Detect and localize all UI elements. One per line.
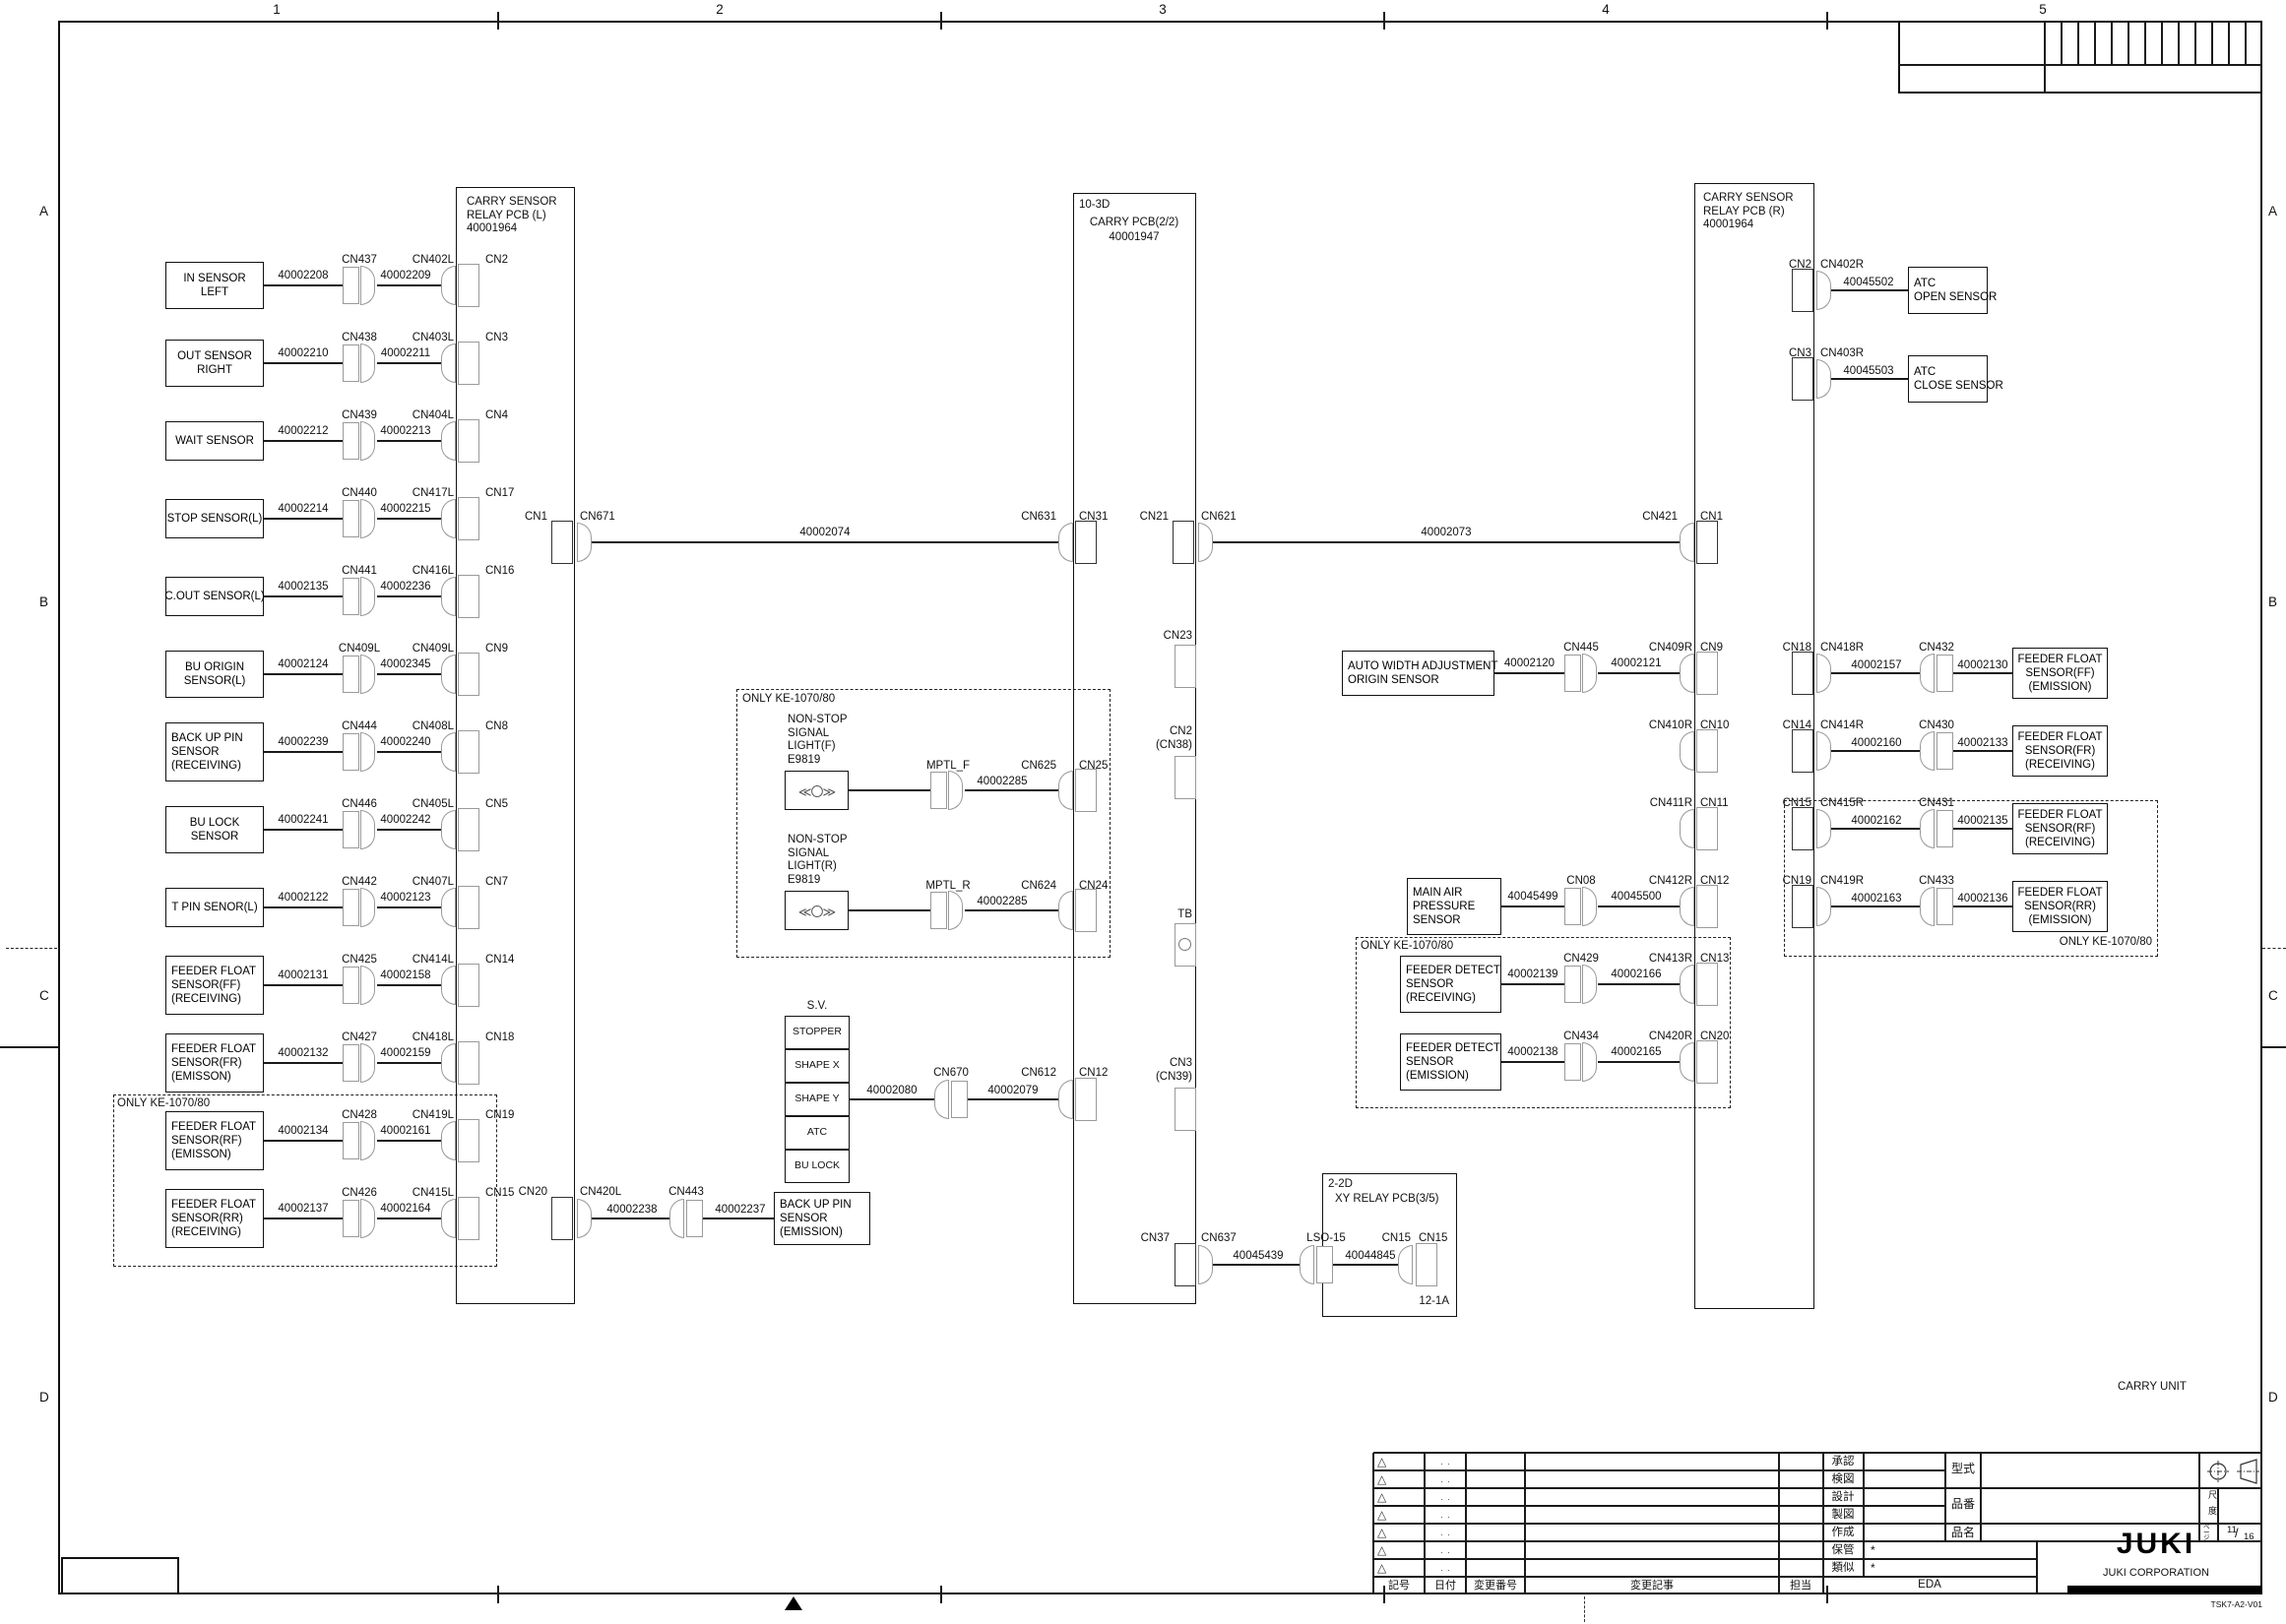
line [1945, 1523, 2262, 1525]
xy-pcb-title: XY RELAY PCB(3/5) [1335, 1193, 1438, 1207]
pcb-connector-stub [1175, 756, 1196, 799]
approval-label: 製図 [1832, 1509, 1855, 1523]
grid-row-label: C [2268, 988, 2278, 1004]
wire-part-number: 40002208 [278, 270, 328, 283]
sv-title: S.V. [807, 1000, 828, 1014]
pcb-connector-label: CN3 (CN39) [1156, 1057, 1192, 1084]
wire-part-number: 40002120 [1504, 657, 1555, 671]
only-ke-label: ONLY KE-1070/80 [1361, 940, 1453, 954]
cable-connector-body [343, 422, 359, 460]
cable-connector [1680, 809, 1694, 848]
wire-part-number: 40002237 [715, 1204, 765, 1218]
line [264, 284, 343, 286]
zone-divider [2262, 948, 2286, 949]
sv-item: BU LOCK [794, 1159, 840, 1171]
cable-connector [1058, 891, 1073, 930]
connector-label: CN402L [413, 254, 454, 268]
only-ke-box-right [1784, 800, 2158, 957]
fold-mark-line [1584, 1596, 1585, 1622]
xy-pcb-zone-tag: 2-2D [1328, 1178, 1353, 1192]
storage-label: 保管 [1832, 1544, 1855, 1558]
line [785, 1149, 850, 1151]
line [0, 1046, 58, 1049]
grid-row-label: D [2268, 1390, 2278, 1405]
line [377, 984, 441, 986]
connector-label: CN416L [413, 565, 454, 579]
connector-label: CN412R [1649, 875, 1692, 889]
pcb-connector-label: CN7 [485, 876, 508, 890]
cable-connector-body [930, 772, 947, 809]
sensor-box-left: BACK UP PIN SENSOR (RECEIVING) [165, 722, 264, 781]
line [377, 362, 441, 364]
sensor-box-left: FEEDER FLOAT SENSOR(FF) (RECEIVING) [165, 956, 264, 1015]
line [1373, 1523, 1823, 1524]
sensor-box-atc: ATC CLOSE SENSOR [1908, 355, 1988, 403]
line [2211, 21, 2212, 65]
pcb-connector-stub [458, 342, 479, 385]
connector-label: CN409R [1649, 642, 1692, 656]
cable-connector [1920, 731, 1935, 771]
line [1383, 12, 1385, 30]
connector-label: LSO-15 [1306, 1232, 1346, 1246]
cable-connector-body [343, 656, 359, 693]
sv-item: SHAPE X [794, 1059, 840, 1071]
wire-part-number: 40045502 [1843, 277, 1893, 290]
line [849, 789, 930, 791]
drawing-code: TSK7-A2-V01 [2211, 1599, 2262, 1609]
line [1823, 1523, 1945, 1524]
pcb-connector-stub [458, 808, 479, 851]
connector-label: CN443 [668, 1186, 704, 1200]
connector-label: CN439 [342, 409, 377, 423]
line [377, 440, 441, 442]
similar-value: * [1871, 1561, 1875, 1575]
connector-label: CN404L [413, 409, 454, 423]
line [2198, 1453, 2200, 1541]
line [1823, 1558, 2037, 1559]
revision-strip [1898, 21, 2262, 94]
connector-label: CN417L [413, 487, 454, 501]
revision-dots: . . [1441, 1475, 1450, 1484]
line [1945, 1487, 2262, 1489]
terminal-circle [1178, 938, 1191, 951]
wire-part-number: 40045439 [1233, 1250, 1283, 1264]
approval-label: 承認 [1832, 1456, 1855, 1469]
line [2194, 21, 2195, 65]
cable-connector-body [343, 811, 359, 848]
connector-label: CN637 [1201, 1232, 1237, 1246]
pcb-connector-label: CN31 [1079, 511, 1108, 525]
line [2161, 21, 2162, 65]
pcb-connector-label: CN5 [485, 798, 508, 812]
pcb-connector-label: CN16 [485, 565, 514, 579]
pcb-connector-label: CN9 [1700, 642, 1723, 656]
pcb-connector-stub [1696, 807, 1718, 850]
sensor-box-left: WAIT SENSOR [165, 421, 264, 461]
brand-subtitle: JUKI CORPORATION [2103, 1567, 2209, 1580]
connector-label: CN624 [1021, 880, 1056, 894]
line [785, 1115, 850, 1117]
line [2262, 1046, 2286, 1049]
line [264, 829, 343, 831]
part-name-label: 品名 [1951, 1526, 1975, 1539]
grid-row-label: D [39, 1390, 49, 1405]
pcb-connector-stub [458, 730, 479, 774]
wire-part-number: 40002124 [278, 658, 328, 672]
connector-label: CN446 [342, 798, 377, 812]
connector-label: CN411R [1650, 797, 1692, 811]
wire-part-number: 40002239 [278, 736, 328, 750]
pcb-connector-label: CN17 [485, 487, 514, 501]
sensor-box-left: IN SENSOR LEFT [165, 262, 264, 309]
cable-connector-body [343, 889, 359, 926]
relay-pcb-left-title: CARRY SENSOR RELAY PCB (L) 40001964 [467, 196, 557, 236]
sensor-box-left: FEEDER FLOAT SENSOR(FR) (EMISSON) [165, 1033, 264, 1093]
line [377, 751, 441, 753]
line [1373, 1540, 1823, 1541]
sensor-box-right: FEEDER FLOAT SENSOR(FR) (RECEIVING) [2012, 725, 2108, 777]
page-total: 16 [2244, 1531, 2254, 1542]
revision-triangle: △ [1377, 1526, 1386, 1539]
cable-connector-body [1564, 655, 1581, 692]
line [703, 1218, 774, 1219]
sv-item: STOPPER [793, 1026, 842, 1037]
wire-part-number: 40002345 [380, 658, 430, 672]
cable-connector [934, 1080, 949, 1119]
revision-dots: . . [1441, 1458, 1450, 1467]
cable-connector [1058, 523, 1073, 562]
wire-part-number: 40002135 [278, 581, 328, 594]
line [2144, 21, 2145, 65]
line [264, 595, 343, 597]
pcb-connector-label: CN24 [1079, 880, 1108, 894]
wire-part-number: 40002074 [799, 527, 850, 540]
cable-connector-body [343, 967, 359, 1004]
sensor-box-atc: ATC OPEN SENSOR [1908, 267, 1988, 314]
cable-connector [441, 888, 456, 927]
xy-pcb-zone-tag: 12-1A [1419, 1295, 1449, 1309]
pcb-connector-stub [458, 1041, 479, 1085]
connector-label: CN402R [1820, 259, 1864, 273]
pcb-connector-stub [1696, 729, 1718, 773]
cable-connector [1680, 887, 1694, 926]
cable-connector-body [343, 578, 359, 615]
revision-dots: . . [1441, 1493, 1450, 1502]
line [592, 1218, 669, 1219]
connector-label: CN414L [413, 954, 454, 968]
line [2077, 21, 2078, 65]
connector-label: CN421 [1642, 511, 1678, 525]
connector-label: CN621 [1201, 511, 1237, 525]
line [497, 1586, 499, 1603]
line [1213, 541, 1680, 543]
connector-label: CN444 [342, 720, 377, 734]
schematic-sheet: 12345AABBCCDDCARRY SENSOR RELAY PCB (L) … [0, 0, 2286, 1624]
line [1213, 1264, 1300, 1266]
brand-logo: JUKI [2117, 1528, 2195, 1561]
line [1373, 1576, 1823, 1577]
pcb-connector-stub [1792, 652, 1813, 695]
wire-part-number: 40002158 [380, 969, 430, 983]
line [264, 751, 343, 753]
wire-part-number: 40002212 [278, 425, 328, 439]
connector-label: CN430 [1919, 719, 1954, 733]
grid-row-label: B [39, 594, 48, 610]
pcb-connector-label: CN25 [1079, 760, 1108, 774]
revision-header-cell: 記号 [1388, 1580, 1410, 1593]
wire-part-number: 40002122 [278, 892, 328, 906]
line [1373, 1469, 1823, 1470]
cable-connector [669, 1199, 684, 1238]
pcb-connector-label: CN37 [1141, 1232, 1170, 1246]
pcb-connector-stub [1696, 652, 1718, 695]
line [1898, 64, 2262, 66]
revision-header-cell: 変更記事 [1630, 1580, 1674, 1593]
signal-lamp-icon: ≪〇≫ [785, 771, 849, 810]
only-ke-box-left [113, 1094, 497, 1267]
line [1383, 1586, 1385, 1603]
wire-part-number: 40044845 [1345, 1250, 1395, 1264]
line [2094, 21, 2095, 65]
wire-part-number: 40002209 [380, 270, 430, 283]
line [377, 829, 441, 831]
wire-part-number: 40002130 [1957, 659, 2007, 673]
cable-connector-body [343, 344, 359, 382]
connector-label: CN403L [413, 332, 454, 345]
sensor-box-left: BU ORIGIN SENSOR(L) [165, 651, 264, 698]
line [497, 12, 499, 30]
pcb-connector-stub [551, 1197, 573, 1240]
connector-label: CN414R [1820, 719, 1864, 733]
cable-connector-body [1937, 732, 1953, 770]
approval-label: 作成 [1832, 1527, 1855, 1540]
carry-pcb-part: 40001947 [1109, 231, 1159, 245]
connector-label: CN671 [580, 511, 615, 525]
line [785, 1048, 850, 1050]
sensor-box-left: T PIN SENOR(L) [165, 888, 264, 927]
cable-connector [441, 655, 456, 694]
revision-dots: . . [1441, 1511, 1450, 1520]
line [1333, 1264, 1398, 1266]
cable-connector [441, 344, 456, 383]
pcb-connector-label: CN1 [1700, 511, 1723, 525]
pcb-connector-stub [458, 264, 479, 307]
line [1823, 1540, 2262, 1542]
line [1373, 1505, 1823, 1506]
connector-label: CN427 [342, 1031, 377, 1045]
sv-item: SHAPE Y [794, 1093, 839, 1104]
wire-part-number: 40002159 [380, 1047, 430, 1061]
wire-part-number: 40002241 [278, 814, 328, 828]
wire-part-number: 40002123 [380, 892, 430, 906]
line [2061, 21, 2062, 65]
cable-connector-body [1316, 1246, 1333, 1283]
only-ke-label: ONLY KE-1070/80 [742, 693, 835, 707]
grid-column-label: 4 [1602, 2, 1610, 18]
cable-connector-body [951, 1081, 968, 1118]
grid-column-label: 2 [716, 2, 724, 18]
wire-part-number: 40002080 [866, 1085, 917, 1098]
pcb-connector-label: CN12 [1700, 875, 1729, 889]
line [264, 673, 343, 675]
grid-row-label: C [39, 988, 49, 1004]
connector-label: CN438 [342, 332, 377, 345]
line [377, 284, 441, 286]
pcb-connector-label: CN15 [1419, 1232, 1447, 1246]
connector-label: CN442 [342, 876, 377, 890]
grid-column-label: 3 [1159, 2, 1167, 18]
revision-header-cell: 変更番号 [1474, 1580, 1517, 1593]
cable-connector-body [343, 500, 359, 537]
pcb-connector-stub [1416, 1243, 1437, 1286]
sensor-box-left: OUT SENSOR RIGHT [165, 340, 264, 387]
pcb-connector-stub [1075, 521, 1097, 564]
sensor-box-left: BU LOCK SENSOR [165, 806, 264, 853]
line [849, 909, 930, 911]
connector-label: CN405L [413, 798, 454, 812]
wire-part-number: 40002285 [977, 776, 1027, 789]
revision-triangle: △ [1377, 1490, 1386, 1504]
cable-connector-body [930, 892, 947, 929]
line [968, 1098, 1058, 1100]
pcb-connector-stub [1075, 769, 1097, 812]
revision-dots: . . [1441, 1564, 1450, 1573]
line [377, 673, 441, 675]
connector-label: CN15 [1382, 1232, 1411, 1246]
similar-label: 類似 [1832, 1562, 1855, 1576]
cable-connector [1680, 731, 1694, 771]
pcb-connector-stub [1175, 1243, 1196, 1286]
grid-row-label: A [39, 204, 48, 219]
cable-connector [1058, 1080, 1073, 1119]
line [2245, 21, 2246, 65]
revision-dots: . . [1441, 1546, 1450, 1555]
zone-divider [6, 948, 57, 949]
pcb-connector-label: TB [1177, 908, 1192, 922]
wire-part-number: 40002157 [1851, 659, 1901, 673]
grid-column-label: 1 [273, 2, 281, 18]
pcb-connector-stub [1075, 889, 1097, 932]
line [264, 906, 343, 908]
revision-header-cell: 担当 [1790, 1580, 1811, 1593]
projection-symbol-icon [2205, 1457, 2260, 1486]
pcb-connector-stub [458, 419, 479, 463]
pcb-connector-label: CN8 [485, 720, 508, 734]
wire-part-number: 40002160 [1851, 737, 1901, 751]
cable-connector [441, 421, 456, 461]
pcb-connector-stub [1175, 645, 1196, 688]
approval-label: 検図 [1832, 1473, 1855, 1487]
wire-part-number: 40002133 [1957, 737, 2007, 751]
sensor-box-backup: BACK UP PIN SENSOR (EMISSION) [774, 1192, 870, 1245]
line [965, 909, 1058, 911]
line [940, 12, 942, 30]
cable-connector [1058, 771, 1073, 810]
wire-part-number: 40002131 [278, 969, 328, 983]
cable-connector-body [1564, 888, 1581, 925]
scale-label: 度 [2208, 1506, 2217, 1517]
line [1980, 1453, 1982, 1541]
line [1494, 672, 1564, 674]
page-slash: / [2235, 1526, 2239, 1540]
pcb-connector-label: CN2 (CN38) [1156, 725, 1192, 752]
signal-lamp-icon: ≪〇≫ [785, 891, 849, 930]
connector-label: CN445 [1563, 642, 1599, 656]
pcb-connector-label: CN21 [1140, 511, 1169, 525]
cable-connector [1920, 654, 1935, 693]
line [264, 984, 343, 986]
line [1826, 12, 1828, 30]
line [2044, 21, 2046, 94]
revision-triangle: △ [1377, 1455, 1386, 1468]
line [377, 518, 441, 520]
pcb-connector-stub [1075, 1078, 1097, 1121]
pcb-connector-stub [551, 521, 573, 564]
line [377, 595, 441, 597]
connector-label: CN441 [342, 565, 377, 579]
connector-label: CN612 [1021, 1067, 1056, 1081]
pcb-connector-label: CN12 [1079, 1067, 1108, 1081]
wire-part-number: 40002132 [278, 1047, 328, 1061]
revision-header-cell: 日付 [1434, 1580, 1456, 1593]
pcb-connector-label: CN1 [525, 511, 547, 525]
line [850, 1098, 934, 1100]
connector-label: MPTL_R [925, 880, 970, 894]
wire-part-number: 40002215 [380, 503, 430, 517]
page-label: ペ ー ジ [2203, 1525, 2210, 1541]
part-no-label: 品番 [1951, 1497, 1975, 1511]
wire-part-number: 40002214 [278, 503, 328, 517]
pcb-connector-stub [1792, 729, 1813, 773]
relay-pcb-right-title: CARRY SENSOR RELAY PCB (R) 40001964 [1703, 192, 1794, 232]
carry-pcb-zone-tag: 10-3D [1079, 199, 1110, 213]
wire-part-number: 40045499 [1507, 891, 1557, 905]
sensor-box-mid: AUTO WIDTH ADJUSTMENT ORIGIN SENSOR [1342, 651, 1494, 696]
revision-triangle: △ [1377, 1561, 1386, 1575]
carry-pcb-title: CARRY PCB(2/2) [1090, 217, 1178, 230]
line [1823, 1576, 2037, 1577]
pcb-connector-label: CN2 [485, 254, 508, 268]
approval-label: 設計 [1832, 1491, 1855, 1505]
cable-connector [1680, 523, 1694, 562]
pcb-connector-label: CN11 [1700, 797, 1729, 811]
connector-label: CN403R [1820, 347, 1864, 361]
only-ke-box-detect [1356, 937, 1731, 1108]
wire-part-number: 40002210 [278, 347, 328, 361]
pcb-connector-stub [458, 497, 479, 540]
revision-triangle: △ [1377, 1543, 1386, 1557]
line [264, 518, 343, 520]
wire-part-number: 40002242 [380, 814, 430, 828]
pcb-connector-label: CN4 [485, 409, 508, 423]
title-block-bar [2067, 1586, 2262, 1594]
connector-label: CN440 [342, 487, 377, 501]
pcb-connector-stub [458, 964, 479, 1007]
wire-part-number: 40002213 [380, 425, 430, 439]
cable-connector-body [1937, 655, 1953, 692]
pcb-connector-stub [458, 886, 479, 929]
pcb-connector-label: CN20 [519, 1186, 547, 1200]
cable-connector [441, 499, 456, 538]
grid-row-label: A [2268, 204, 2277, 219]
line [1826, 1586, 1828, 1603]
wire-part-number: 40002236 [380, 581, 430, 594]
cable-connector [441, 266, 456, 305]
nonstop-light-label: NON-STOP SIGNAL LIGHT(F) E9819 [788, 714, 848, 767]
cable-connector-body [343, 267, 359, 304]
wire-part-number: 40002285 [977, 896, 1027, 909]
nonstop-light-label: NON-STOP SIGNAL LIGHT(R) E9819 [788, 834, 848, 887]
